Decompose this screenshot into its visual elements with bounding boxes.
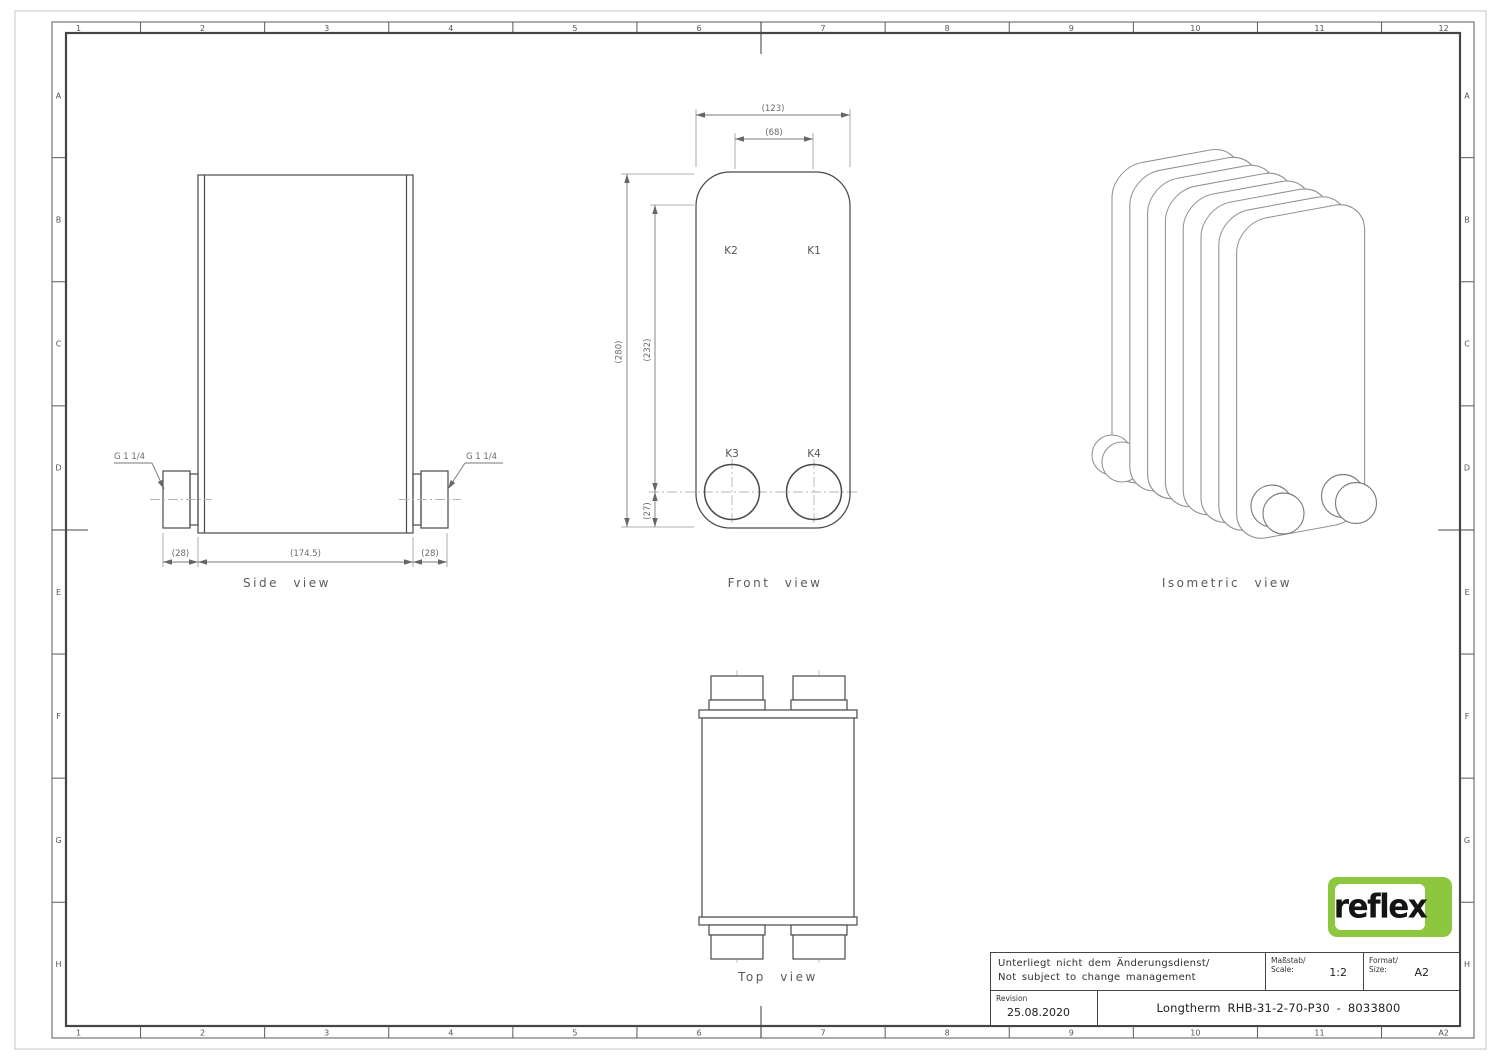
ruler-label: A2 (1438, 1028, 1449, 1037)
scale-label-en: Scale: (1271, 965, 1363, 974)
ruler-label: 8 (945, 24, 950, 33)
ruler-label: 6 (696, 24, 701, 33)
front-view: (123) (68) (280) (232) (27) K2 K1 K3 K4 … (615, 104, 861, 590)
port-label-k4: K4 (807, 448, 821, 460)
ruler-label: D (1464, 464, 1470, 473)
ruler-label: B (1464, 216, 1470, 225)
port-label-k1: K1 (807, 245, 821, 257)
ruler-label: G (55, 836, 61, 845)
ruler-label: 10 (1190, 24, 1200, 33)
scale-value: 1:2 (1329, 966, 1347, 979)
ruler-label: A (1464, 91, 1470, 100)
ruler-label: C (1464, 340, 1470, 349)
dim-27: (27) (643, 502, 653, 519)
ruler-label: 1 (76, 24, 81, 33)
side-view-outline (163, 175, 448, 533)
ruler-label: 12 (1439, 24, 1449, 33)
front-view-outline (696, 172, 850, 528)
ruler-label: 7 (821, 24, 826, 33)
change-note: Unterliegt nicht dem Änderungsdienst/ No… (991, 953, 1266, 991)
revision-label: Revision (991, 991, 1097, 1003)
ruler-label: H (55, 960, 61, 969)
change-note-line1: Unterliegt nicht dem Änderungsdienst/ (998, 957, 1265, 971)
format-value: A2 (1414, 966, 1429, 979)
dim-123: (123) (762, 104, 785, 114)
drawing-canvas: 1234567891011121234567891011A2ABCDEFGHAB… (0, 0, 1500, 1061)
ruler-label: 8 (945, 1028, 950, 1037)
ruler-label: 11 (1314, 1028, 1324, 1037)
side-view: G 1 1/4 G 1 1/4 (28) (174.5) (28) Side v… (114, 175, 503, 590)
dim-28-left: (28) (172, 549, 189, 559)
ruler-label: 11 (1314, 24, 1324, 33)
ruler-label: 2 (200, 1028, 205, 1037)
ruler-label: E (1464, 588, 1469, 597)
change-note-line2: Not subject to change management (998, 971, 1265, 985)
ruler-label: G (1464, 836, 1470, 845)
ruler-label: 9 (1069, 1028, 1074, 1037)
scale-label-de: Maßstab/ (1271, 956, 1363, 965)
port-label-k2: K2 (724, 245, 738, 257)
dim-232: (232) (643, 339, 653, 362)
ruler-label: 5 (572, 1028, 577, 1037)
ruler-label: B (56, 216, 62, 225)
ruler-label: 7 (821, 1028, 826, 1037)
drawing-sheet: 1234567891011121234567891011A2ABCDEFGHAB… (0, 0, 1500, 1061)
ruler-label: F (56, 712, 61, 721)
front-view-caption: Front view (728, 576, 823, 590)
reflex-logo-text: reflex (1334, 888, 1426, 926)
port-label-k3: K3 (725, 448, 739, 460)
thread-label-right: G 1 1/4 (466, 452, 497, 462)
ruler-label: 6 (696, 1028, 701, 1037)
ruler-label: 1 (76, 1028, 81, 1037)
isometric-view-caption: Isometric view (1162, 576, 1292, 590)
dim-68: (68) (765, 128, 782, 138)
ruler-label: 10 (1190, 1028, 1200, 1037)
format-label-de: Format/ (1369, 956, 1459, 965)
ruler-label: 4 (448, 1028, 453, 1037)
ruler-label: 9 (1069, 24, 1074, 33)
thread-label-left: G 1 1/4 (114, 452, 145, 462)
top-view: Top view (699, 670, 857, 984)
ruler-label: A (56, 91, 62, 100)
side-view-leaders (114, 463, 503, 489)
revision-date: 25.08.2020 (1007, 1006, 1097, 1019)
ruler-label: 5 (572, 24, 577, 33)
title-block: Unterliegt nicht dem Änderungsdienst/ No… (990, 952, 1460, 1026)
ruler-label: D (55, 464, 61, 473)
ruler-label: 3 (324, 1028, 329, 1037)
ruler-label: 3 (324, 24, 329, 33)
dim-28-right: (28) (421, 549, 438, 559)
ruler-label: 2 (200, 24, 205, 33)
dim-280: (280) (615, 341, 625, 364)
isometric-view: Isometric view (1092, 133, 1377, 590)
revision-cell: Revision 25.08.2020 (991, 991, 1098, 1025)
ruler-label: H (1464, 960, 1470, 969)
top-view-caption: Top view (737, 970, 818, 984)
ruler-label: C (56, 340, 62, 349)
ruler-label: E (56, 588, 61, 597)
reflex-logo: reflex (1328, 877, 1452, 937)
format-cell: Format/ Size: A2 (1364, 953, 1459, 991)
drawing-title: Longtherm RHB-31-2-70-P30 - 8033800 (1098, 991, 1459, 1025)
ruler-label: 4 (448, 24, 453, 33)
ruler-label: F (1465, 712, 1470, 721)
top-view-outline (699, 676, 857, 959)
dim-174-5: (174.5) (290, 549, 321, 559)
scale-cell: Maßstab/ Scale: 1:2 (1266, 953, 1364, 991)
side-view-caption: Side view (243, 576, 331, 590)
